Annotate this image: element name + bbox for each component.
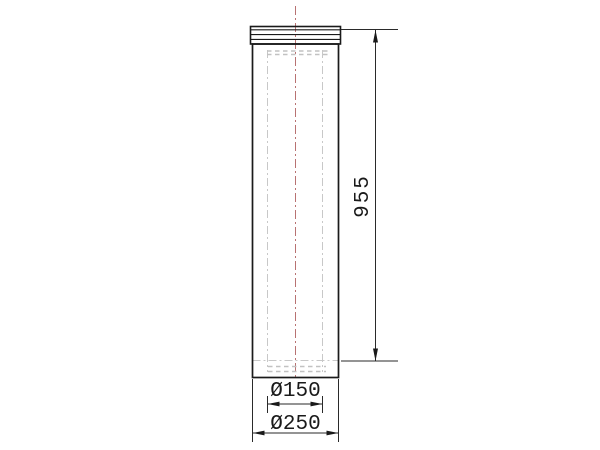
arrowhead-left-icon bbox=[253, 431, 265, 436]
pipe-technical-drawing: 955 Ø150 Ø250 bbox=[0, 0, 600, 450]
drawing-canvas: 955 Ø150 Ø250 bbox=[0, 0, 600, 450]
length-dimension-label: 955 bbox=[352, 174, 375, 218]
outer-diameter-label: Ø250 bbox=[270, 413, 320, 436]
arrowhead-down-icon bbox=[373, 349, 378, 362]
arrowhead-up-icon bbox=[373, 30, 378, 43]
top-insertion-marks bbox=[267, 51, 331, 55]
arrowhead-right-icon bbox=[327, 431, 339, 436]
inner-diameter-label: Ø150 bbox=[270, 380, 320, 403]
bottom-insertion-marks bbox=[268, 367, 326, 372]
